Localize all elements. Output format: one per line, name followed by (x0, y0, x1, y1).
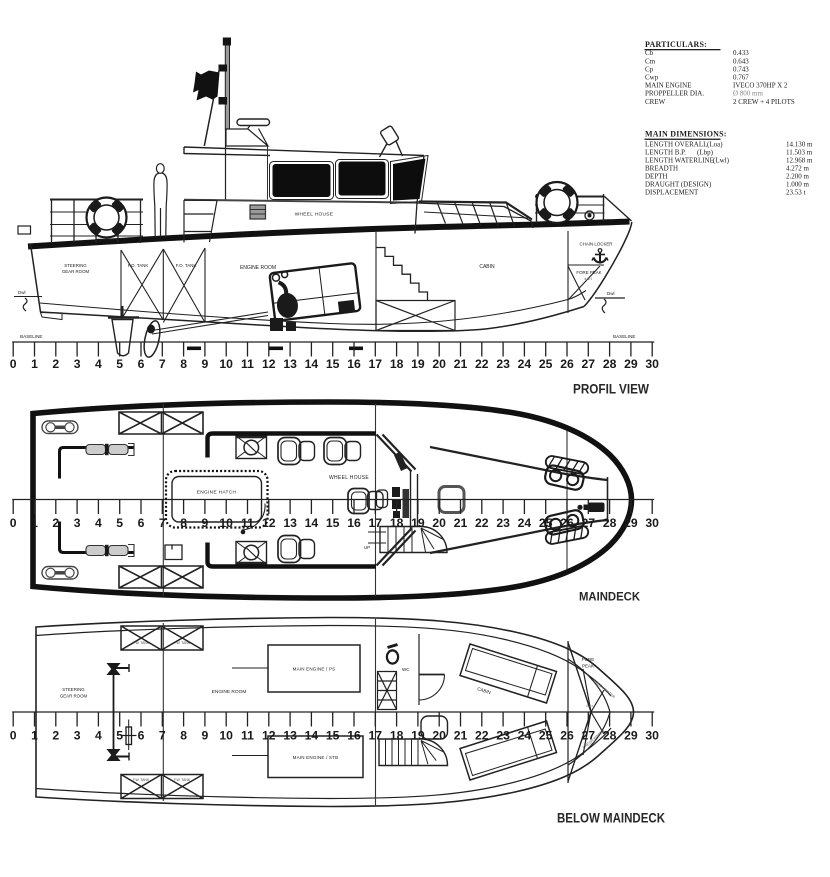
svg-text:0: 0 (10, 729, 17, 743)
svg-text:27: 27 (582, 516, 596, 530)
svg-text:MAIN ENGINE: MAIN ENGINE (645, 82, 691, 90)
svg-text:16: 16 (347, 357, 361, 371)
svg-text:STEERING: STEERING (62, 687, 85, 692)
svg-text:0.743: 0.743 (733, 65, 749, 73)
svg-text:BASELINE: BASELINE (613, 334, 635, 339)
svg-text:1.000 m: 1.000 m (786, 181, 810, 189)
svg-text:24: 24 (518, 357, 532, 371)
svg-text:(Loa): (Loa) (707, 141, 723, 149)
svg-text:10: 10 (219, 357, 233, 371)
svg-text:IVECO 370HP X 2: IVECO 370HP X 2 (733, 82, 788, 90)
svg-text:WC: WC (402, 667, 410, 672)
svg-text:3: 3 (74, 516, 81, 530)
svg-text:F.O. TANK: F.O. TANK (176, 263, 197, 268)
svg-text:20: 20 (432, 729, 446, 743)
svg-text:ENGINE HATCH: ENGINE HATCH (197, 490, 237, 496)
svg-text:UP: UP (364, 545, 370, 550)
svg-text:GEAR ROOM: GEAR ROOM (60, 694, 88, 699)
svg-text:19: 19 (411, 729, 425, 743)
svg-text:28: 28 (603, 516, 617, 530)
svg-text:25: 25 (539, 516, 553, 530)
svg-text:F.W. TANK: F.W. TANK (133, 641, 150, 645)
svg-text:28: 28 (603, 357, 617, 371)
svg-text:10: 10 (219, 516, 233, 530)
svg-text:12: 12 (262, 357, 276, 371)
svg-text:6: 6 (138, 357, 145, 371)
svg-text:Cwp: Cwp (645, 74, 659, 82)
svg-text:2.200 m: 2.200 m (786, 173, 810, 181)
svg-text:1: 1 (31, 729, 38, 743)
svg-text:25: 25 (539, 729, 553, 743)
svg-text:BASELINE: BASELINE (20, 334, 42, 339)
svg-text:8: 8 (180, 516, 187, 530)
svg-text:LENGTH OVERALL: LENGTH OVERALL (645, 141, 707, 149)
svg-text:23: 23 (496, 729, 510, 743)
svg-text:5: 5 (116, 357, 123, 371)
svg-text:8: 8 (180, 729, 187, 743)
svg-text:16: 16 (347, 516, 361, 530)
svg-text:PARTICULARS:: PARTICULARS: (645, 40, 707, 49)
svg-text:14: 14 (305, 516, 319, 530)
svg-text:CREW: CREW (645, 98, 666, 106)
svg-text:22: 22 (475, 357, 489, 371)
svg-text:0.767: 0.767 (733, 74, 749, 82)
svg-text:12: 12 (262, 729, 276, 743)
svg-text:4.5 t: 4.5 t (584, 277, 592, 281)
svg-text:18: 18 (390, 729, 404, 743)
svg-text:2: 2 (52, 516, 59, 530)
svg-text:14.130 m: 14.130 m (786, 141, 813, 149)
svg-text:6: 6 (138, 516, 145, 530)
svg-text:7: 7 (159, 357, 166, 371)
svg-text:12.968 m: 12.968 m (786, 157, 813, 165)
svg-text:9: 9 (202, 357, 209, 371)
svg-text:MAIN DIMENSIONS:: MAIN DIMENSIONS: (645, 130, 727, 139)
svg-text:4: 4 (95, 729, 102, 743)
svg-text:6: 6 (138, 729, 145, 743)
svg-text:22: 22 (475, 516, 489, 530)
svg-text:Dwl: Dwl (18, 290, 26, 295)
svg-text:14: 14 (305, 729, 319, 743)
svg-text:19: 19 (411, 357, 425, 371)
svg-text:19: 19 (411, 516, 425, 530)
svg-text:LENGTH B.P.: LENGTH B.P. (645, 149, 686, 157)
svg-text:20: 20 (432, 357, 446, 371)
svg-text:4.5 t: 4.5 t (586, 704, 593, 708)
svg-text:4.272 m: 4.272 m (786, 165, 810, 173)
svg-text:15: 15 (326, 516, 340, 530)
svg-text:PROPPELLER DIA.: PROPPELLER DIA. (645, 90, 704, 98)
svg-text:F.W. TANK: F.W. TANK (133, 778, 150, 782)
svg-text:11: 11 (241, 516, 254, 530)
svg-text:WHEEL HOUSE: WHEEL HOUSE (295, 212, 334, 218)
svg-text:16: 16 (347, 729, 361, 743)
svg-text:13: 13 (283, 729, 297, 743)
svg-text:MAIN ENGINE / PS: MAIN ENGINE / PS (293, 667, 336, 672)
svg-text:Dwl: Dwl (607, 291, 615, 296)
svg-text:2: 2 (52, 357, 59, 371)
svg-text:17: 17 (369, 516, 383, 530)
svg-text:1: 1 (31, 357, 38, 371)
svg-text:MAIN ENGINE / STB: MAIN ENGINE / STB (293, 755, 339, 760)
svg-text:BREADTH: BREADTH (645, 165, 678, 173)
svg-text:0.433: 0.433 (733, 49, 749, 57)
svg-text:28: 28 (603, 729, 617, 743)
svg-text:Cm: Cm (645, 57, 656, 65)
svg-text:24: 24 (518, 516, 532, 530)
svg-text:17: 17 (369, 357, 383, 371)
svg-text:26: 26 (560, 516, 574, 530)
svg-text:29: 29 (624, 357, 638, 371)
svg-text:25: 25 (539, 357, 553, 371)
svg-text:DEPTH: DEPTH (645, 173, 668, 181)
svg-text:24: 24 (518, 729, 532, 743)
svg-text:Cb: Cb (645, 49, 654, 57)
svg-text:F.W. TANK: F.W. TANK (174, 641, 191, 645)
svg-text:STEERING: STEERING (64, 263, 87, 268)
svg-text:8: 8 (180, 357, 187, 371)
svg-text:ENGINE ROOM: ENGINE ROOM (240, 265, 276, 271)
svg-text:22: 22 (475, 729, 489, 743)
svg-text:26: 26 (560, 357, 574, 371)
svg-text:30: 30 (645, 516, 659, 530)
svg-text:7: 7 (159, 729, 166, 743)
svg-text:30: 30 (645, 729, 659, 743)
svg-text:27: 27 (582, 729, 596, 743)
svg-text:26: 26 (560, 729, 574, 743)
svg-text:17: 17 (369, 729, 383, 743)
svg-text:27: 27 (582, 357, 596, 371)
svg-text:MAINDECK: MAINDECK (579, 590, 640, 604)
svg-text:FORE PEAK: FORE PEAK (576, 270, 601, 275)
svg-text:PEAK: PEAK (582, 664, 594, 669)
svg-text:9: 9 (202, 516, 209, 530)
svg-text:15: 15 (326, 729, 340, 743)
svg-text:30: 30 (645, 357, 659, 371)
svg-text:GEAR ROOM: GEAR ROOM (62, 269, 90, 274)
svg-text:ENGINE ROOM: ENGINE ROOM (212, 689, 247, 695)
svg-text:21: 21 (454, 357, 468, 371)
svg-text:CHAIN LOCKER: CHAIN LOCKER (580, 242, 613, 247)
svg-text:0: 0 (10, 516, 17, 530)
svg-text:23: 23 (496, 357, 510, 371)
svg-text:10: 10 (219, 729, 233, 743)
svg-text:DRAUGHT (DESIGN): DRAUGHT (DESIGN) (645, 181, 712, 189)
svg-text:(Lwl): (Lwl) (713, 157, 730, 165)
svg-text:FORE: FORE (582, 657, 595, 662)
svg-text:11: 11 (241, 729, 254, 743)
svg-text:7: 7 (159, 516, 166, 530)
svg-text:F.W. TANK: F.W. TANK (174, 778, 191, 782)
svg-text:21: 21 (454, 516, 468, 530)
svg-text:F.O. TANK: F.O. TANK (128, 263, 149, 268)
svg-text:18: 18 (390, 357, 404, 371)
svg-text:29: 29 (624, 729, 638, 743)
svg-text:0.643: 0.643 (733, 57, 749, 65)
svg-text:LENGTH WATERLINE: LENGTH WATERLINE (645, 157, 714, 165)
svg-text:21: 21 (454, 729, 468, 743)
svg-text:9: 9 (202, 729, 209, 743)
svg-text:(Lbp): (Lbp) (697, 149, 714, 157)
svg-text:5: 5 (116, 729, 123, 743)
svg-text:3: 3 (74, 357, 81, 371)
svg-text:Cp: Cp (645, 65, 654, 73)
svg-text:13: 13 (283, 357, 297, 371)
svg-text:DISPLACEMENT: DISPLACEMENT (645, 189, 699, 197)
svg-text:WHEEL HOUSE: WHEEL HOUSE (329, 475, 369, 481)
svg-text:5: 5 (116, 516, 123, 530)
svg-text:2: 2 (52, 729, 59, 743)
svg-text:CABIN: CABIN (479, 264, 495, 270)
svg-text:BELOW MAINDECK: BELOW MAINDECK (557, 811, 665, 826)
svg-text:Ø 800 mm: Ø 800 mm (733, 90, 764, 98)
svg-text:14: 14 (305, 357, 319, 371)
svg-text:0: 0 (10, 357, 17, 371)
svg-text:23.53 t: 23.53 t (786, 189, 806, 197)
svg-text:CABIN: CABIN (477, 686, 492, 695)
svg-text:PROFIL VIEW: PROFIL VIEW (573, 382, 649, 397)
svg-text:20: 20 (432, 516, 446, 530)
svg-text:2 CREW + 4 PILOTS: 2 CREW + 4 PILOTS (733, 98, 795, 106)
svg-text:18: 18 (390, 516, 404, 530)
svg-text:13: 13 (283, 516, 297, 530)
svg-text:29: 29 (624, 516, 638, 530)
svg-text:1: 1 (31, 516, 38, 530)
svg-text:4: 4 (95, 516, 102, 530)
svg-text:11.503 m: 11.503 m (786, 149, 813, 157)
svg-text:12: 12 (262, 516, 276, 530)
svg-text:4: 4 (95, 357, 102, 371)
svg-text:11: 11 (241, 357, 254, 371)
svg-text:15: 15 (326, 357, 340, 371)
svg-text:23: 23 (496, 516, 510, 530)
svg-text:3: 3 (74, 729, 81, 743)
